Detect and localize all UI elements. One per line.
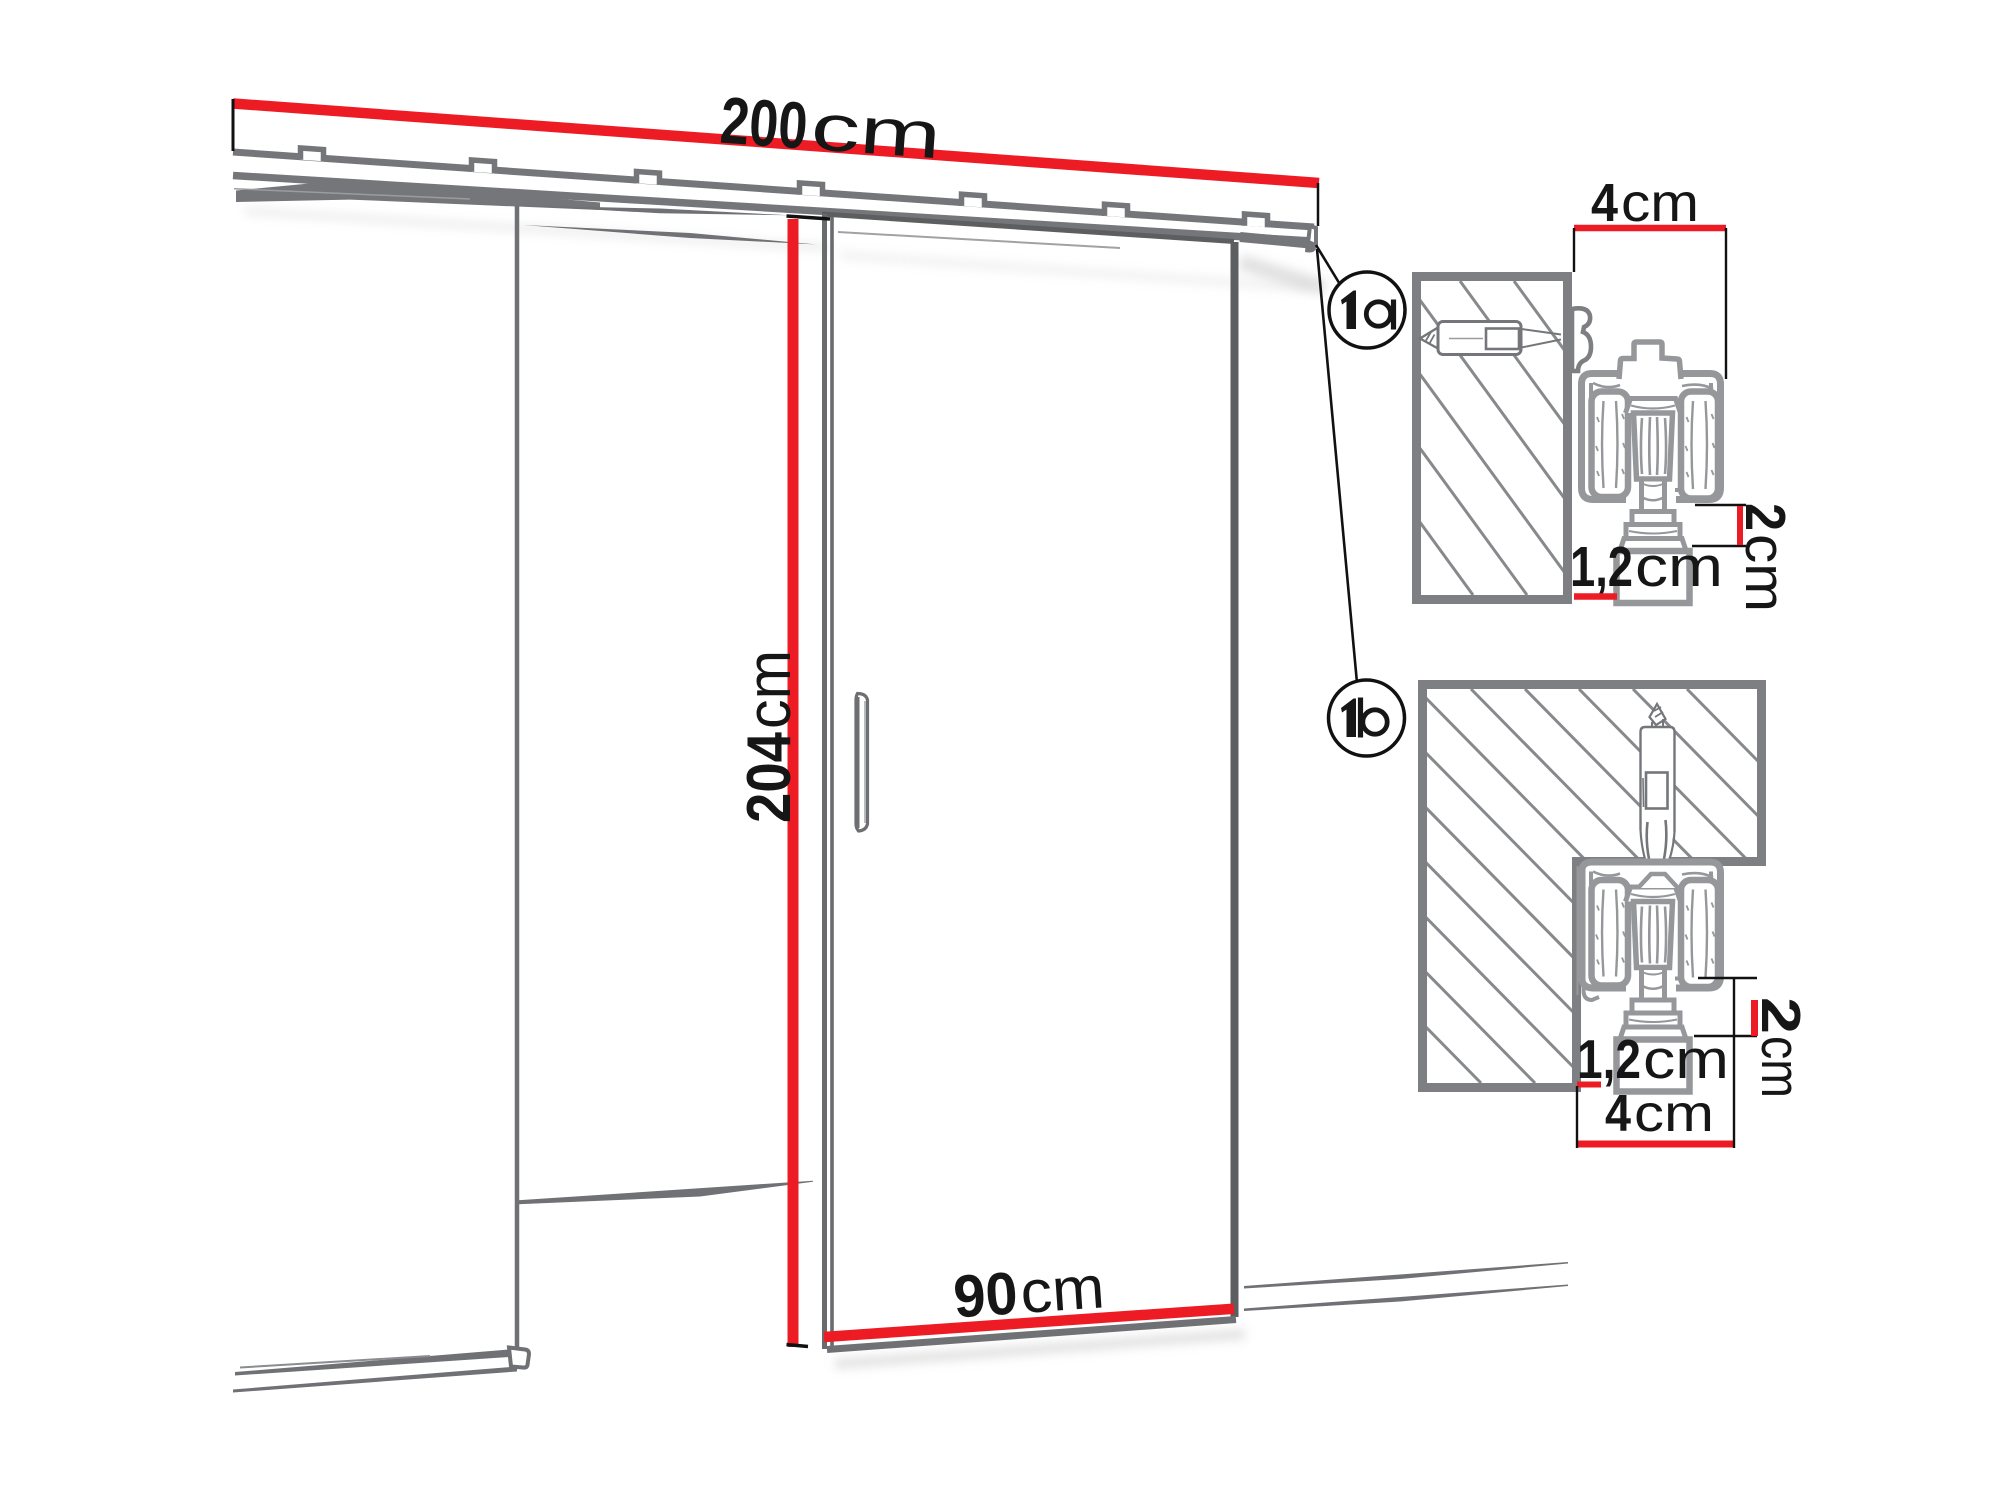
svg-text:200cm: 200cm <box>718 83 944 173</box>
svg-text:4cm: 4cm <box>1591 173 1699 233</box>
svg-text:1,2cm: 1,2cm <box>1577 1028 1729 1090</box>
svg-text:204cm: 204cm <box>735 650 804 823</box>
svg-text:2cm: 2cm <box>1733 503 1797 612</box>
svg-text:2cm: 2cm <box>1750 997 1812 1098</box>
svg-text:1,2cm: 1,2cm <box>1570 535 1723 599</box>
svg-text:4cm: 4cm <box>1605 1085 1714 1143</box>
svg-text:90cm: 90cm <box>951 1253 1106 1330</box>
